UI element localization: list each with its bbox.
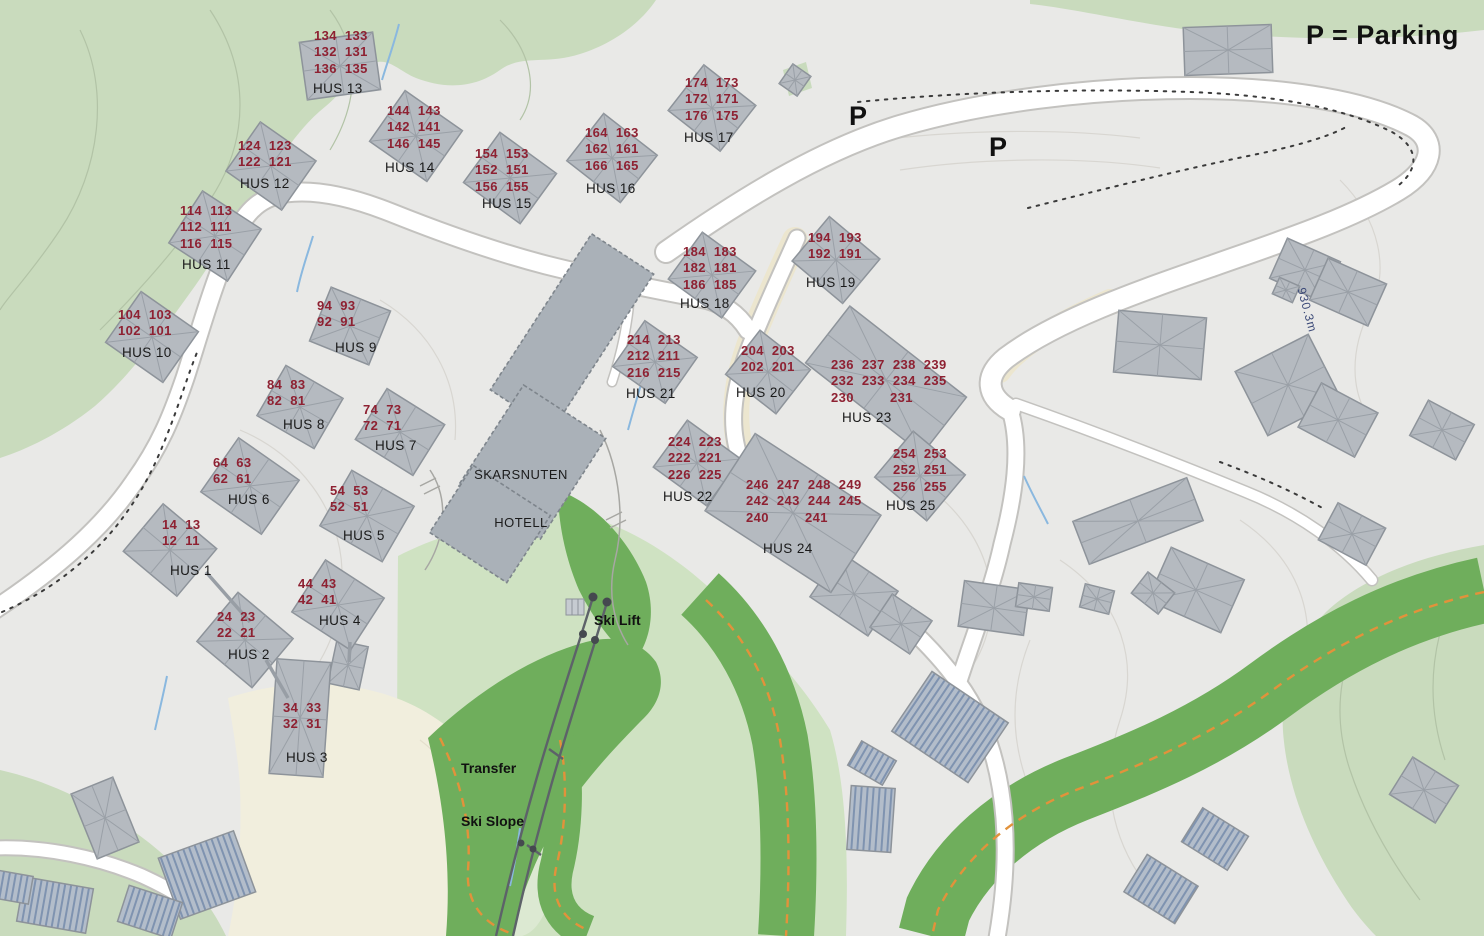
house-cluster-11: 114 113112 111116 115HUS 11 xyxy=(180,203,232,252)
hotel-label: SKARSNUTEN HOTELL xyxy=(455,435,587,547)
house-units-row: 136 135 xyxy=(314,61,368,77)
house-units-row: 226 225 xyxy=(668,467,722,483)
house-units-row: 122 121 xyxy=(238,154,292,170)
house-units-row: 186 185 xyxy=(683,277,737,293)
house-label: HUS 7 xyxy=(375,438,417,453)
house-units-row: 216 215 xyxy=(627,365,681,381)
house-units-row: 116 115 xyxy=(180,236,232,252)
house-cluster-22: 224 223222 221226 225HUS 22 xyxy=(668,434,722,483)
house-cluster-5: 54 5352 51HUS 5 xyxy=(330,483,369,516)
house-units-row: 194 193 xyxy=(808,230,862,246)
house-units-row: 230 231 xyxy=(831,390,947,406)
transfer-slope-label: Transfer Ski Slope xyxy=(461,725,524,848)
house-units-row: 154 153 xyxy=(475,146,529,162)
house-units-row: 192 191 xyxy=(808,246,862,262)
transfer-slope-line2: Ski Slope xyxy=(461,813,524,831)
house-cluster-9: 94 9392 91HUS 9 xyxy=(317,298,356,331)
house-label: HUS 10 xyxy=(122,345,172,360)
house-label: HUS 11 xyxy=(182,257,231,272)
house-units-row: 72 71 xyxy=(363,418,402,434)
house-cluster-25: 254 253252 251256 255HUS 25 xyxy=(893,446,947,495)
house-units-row: 246 247 248 249 xyxy=(746,477,862,493)
house-cluster-20: 204 203202 201HUS 20 xyxy=(741,343,795,376)
house-units-row: 212 211 xyxy=(627,348,681,364)
house-units-row: 74 73 xyxy=(363,402,402,418)
house-units-row: 24 23 xyxy=(217,609,256,625)
parking-legend: P = Parking xyxy=(1306,20,1459,51)
house-units-row: 134 133 xyxy=(314,28,368,44)
house-cluster-6: 64 6362 61HUS 6 xyxy=(213,455,252,488)
house-cluster-13: 134 133132 131136 135HUS 13 xyxy=(314,28,368,77)
house-units-row: 236 237 238 239 xyxy=(831,357,947,373)
house-cluster-14: 144 143142 141146 145HUS 14 xyxy=(387,103,441,152)
house-units-row: 146 145 xyxy=(387,136,441,152)
background-building xyxy=(847,786,895,853)
house-units-row: 94 93 xyxy=(317,298,356,314)
house-units-row: 184 183 xyxy=(683,244,737,260)
house-units-row: 252 251 xyxy=(893,462,947,478)
house-units-row: 12 11 xyxy=(162,533,201,549)
house-label: HUS 18 xyxy=(680,296,730,311)
house-units-row: 172 171 xyxy=(685,91,739,107)
house-units-row: 240 241 xyxy=(746,510,862,526)
house-label: HUS 25 xyxy=(886,498,936,513)
house-label: HUS 13 xyxy=(313,81,363,96)
house-label: HUS 9 xyxy=(335,340,377,355)
house-cluster-18: 184 183182 181186 185HUS 18 xyxy=(683,244,737,293)
house-units-row: 52 51 xyxy=(330,499,369,515)
house-units-row: 114 113 xyxy=(180,203,232,219)
house-label: HUS 20 xyxy=(736,385,786,400)
house-units-row: 164 163 xyxy=(585,125,639,141)
house-label: HUS 19 xyxy=(806,275,856,290)
house-units-row: 204 203 xyxy=(741,343,795,359)
house-label: HUS 22 xyxy=(663,489,713,504)
parking-marker-1: P xyxy=(849,101,867,132)
house-cluster-16: 164 163162 161166 165HUS 16 xyxy=(585,125,639,174)
house-cluster-3: 34 3332 31HUS 3 xyxy=(283,700,322,733)
house-units-row: 166 165 xyxy=(585,158,639,174)
house-label: HUS 2 xyxy=(228,647,270,662)
house-units-row: 142 141 xyxy=(387,119,441,135)
house-units-row: 104 103 xyxy=(118,307,172,323)
house-label: HUS 12 xyxy=(240,176,290,191)
lift-station xyxy=(566,599,584,615)
house-units-row: 54 53 xyxy=(330,483,369,499)
house-label: HUS 8 xyxy=(283,417,325,432)
house-units-row: 124 123 xyxy=(238,138,292,154)
house-units-row: 224 223 xyxy=(668,434,722,450)
house-cluster-24: 246 247 248 249242 243 244 245240 241HUS… xyxy=(746,477,862,526)
house-cluster-12: 124 123122 121HUS 12 xyxy=(238,138,292,171)
house-label: HUS 17 xyxy=(684,130,734,145)
house-units-row: 102 101 xyxy=(118,323,172,339)
house-label: HUS 23 xyxy=(842,410,892,425)
house-label: HUS 5 xyxy=(343,528,385,543)
house-units-row: 174 173 xyxy=(685,75,739,91)
house-units-row: 144 143 xyxy=(387,103,441,119)
house-units-row: 232 233 234 235 xyxy=(831,373,947,389)
house-units-row: 152 151 xyxy=(475,162,529,178)
hotel-label-line2: HOTELL xyxy=(455,515,587,531)
house-units-row: 14 13 xyxy=(162,517,201,533)
house-label: HUS 14 xyxy=(385,160,435,175)
house-cluster-2: 24 2322 21HUS 2 xyxy=(217,609,256,642)
house-units-row: 132 131 xyxy=(314,44,368,60)
house-cluster-7: 74 7372 71HUS 7 xyxy=(363,402,402,435)
house-units-row: 34 33 xyxy=(283,700,322,716)
house-units-row: 162 161 xyxy=(585,141,639,157)
house-label: HUS 4 xyxy=(319,613,361,628)
house-units-row: 156 155 xyxy=(475,179,529,195)
house-cluster-17: 174 173172 171176 175HUS 17 xyxy=(685,75,739,124)
house-units-row: 44 43 xyxy=(298,576,337,592)
background-building xyxy=(1183,24,1273,75)
house-label: HUS 16 xyxy=(586,181,636,196)
house-units-row: 182 181 xyxy=(683,260,737,276)
house-label: HUS 6 xyxy=(228,492,270,507)
house-cluster-1: 14 1312 11HUS 1 xyxy=(162,517,201,550)
transfer-slope-line1: Transfer xyxy=(461,760,524,778)
house-label: HUS 1 xyxy=(170,563,212,578)
house-units-row: 62 61 xyxy=(213,471,252,487)
background-building xyxy=(1015,583,1052,611)
house-label: HUS 24 xyxy=(763,541,813,556)
background-building xyxy=(0,870,33,904)
hotel-label-line1: SKARSNUTEN xyxy=(455,467,587,483)
house-units-row: 32 31 xyxy=(283,716,322,732)
house-units-row: 42 41 xyxy=(298,592,337,608)
house-units-row: 22 21 xyxy=(217,625,256,641)
house-units-row: 254 253 xyxy=(893,446,947,462)
house-label: HUS 3 xyxy=(286,750,328,765)
house-units-row: 222 221 xyxy=(668,450,722,466)
house-units-row: 112 111 xyxy=(180,219,232,235)
house-cluster-21: 214 213212 211216 215HUS 21 xyxy=(627,332,681,381)
house-cluster-8: 84 8382 81HUS 8 xyxy=(267,377,306,410)
house-units-row: 176 175 xyxy=(685,108,739,124)
house-cluster-19: 194 193192 191HUS 19 xyxy=(808,230,862,263)
house-units-row: 256 255 xyxy=(893,479,947,495)
house-units-row: 202 201 xyxy=(741,359,795,375)
house-units-row: 92 91 xyxy=(317,314,356,330)
house-cluster-4: 44 4342 41HUS 4 xyxy=(298,576,337,609)
ski-lift-label: Ski Lift xyxy=(594,612,641,628)
house-units-row: 82 81 xyxy=(267,393,306,409)
house-units-row: 64 63 xyxy=(213,455,252,471)
house-cluster-23: 236 237 238 239232 233 234 235230 231HUS… xyxy=(831,357,947,406)
resort-map: P = Parking P P SKARSNUTEN HOTELL Ski Li… xyxy=(0,0,1484,936)
house-units-row: 214 213 xyxy=(627,332,681,348)
house-cluster-10: 104 103102 101HUS 10 xyxy=(118,307,172,340)
parking-marker-2: P xyxy=(989,132,1007,163)
house-units-row: 84 83 xyxy=(267,377,306,393)
house-label: HUS 15 xyxy=(482,196,532,211)
house-units-row: 242 243 244 245 xyxy=(746,493,862,509)
house-label: HUS 21 xyxy=(626,386,676,401)
background-building xyxy=(1113,310,1206,379)
house-cluster-15: 154 153152 151156 155HUS 15 xyxy=(475,146,529,195)
